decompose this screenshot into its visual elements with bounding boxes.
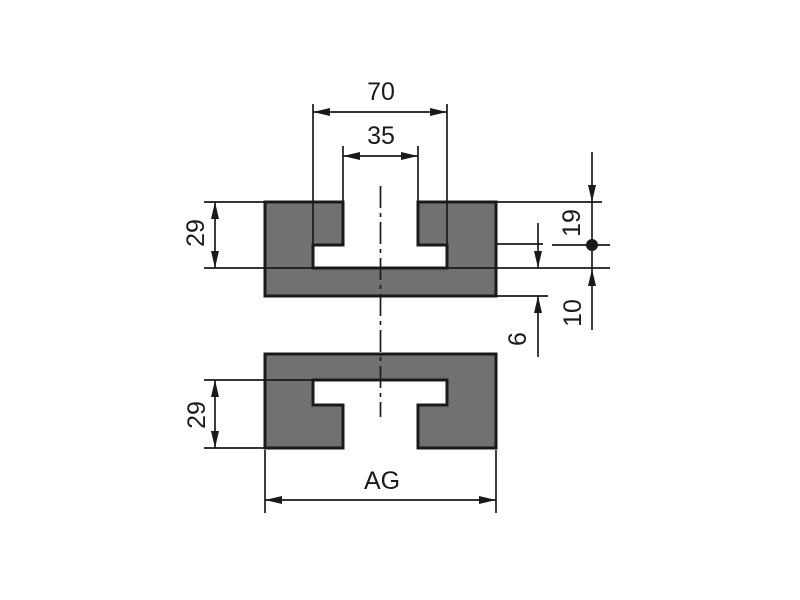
- dim-cavity-width-label: 70: [367, 78, 395, 106]
- arrowhead-up-icon: [211, 380, 219, 397]
- dim-lower-slot-depth-label: 29: [183, 401, 211, 429]
- arrowhead-down-icon: [211, 431, 219, 448]
- dim-overall-width-label: AG: [364, 467, 400, 495]
- arrowhead-left-icon: [343, 152, 360, 160]
- arrowhead-left-icon: [265, 496, 282, 504]
- dim-lip-depth-label: 19: [558, 209, 586, 237]
- dim-upper-slot-depth-label: 29: [182, 219, 210, 247]
- dim-upper-slot-depth: 29: [182, 202, 610, 268]
- arrowhead-up-icon: [211, 202, 219, 219]
- arrowhead-up-icon: [588, 269, 596, 286]
- dim-base-thickness-label: 6: [504, 332, 532, 346]
- arrowhead-right-icon: [401, 152, 418, 160]
- dim-overall-width: AG: [265, 450, 496, 513]
- dim-lip-depth: 19: [497, 152, 610, 330]
- arrowhead-right-icon: [430, 108, 447, 116]
- dim-mouth-width-label: 35: [367, 122, 395, 150]
- arrowhead-right-icon: [479, 496, 496, 504]
- arrowhead-down-icon: [588, 185, 596, 202]
- arrowhead-down-icon: [211, 251, 219, 268]
- dim-undercut-height: 10: [559, 269, 596, 327]
- technical-drawing: 70 35 29 19 10 6: [0, 0, 800, 600]
- arrowhead-down-icon: [534, 251, 542, 268]
- dim-base-thickness: 6: [496, 223, 548, 357]
- dim-undercut-height-label: 10: [559, 299, 587, 327]
- reference-dot: [586, 239, 598, 251]
- arrowhead-left-icon: [313, 108, 330, 116]
- drawing-canvas: 70 35 29 19 10 6: [0, 0, 800, 600]
- arrowhead-up-icon: [534, 296, 542, 313]
